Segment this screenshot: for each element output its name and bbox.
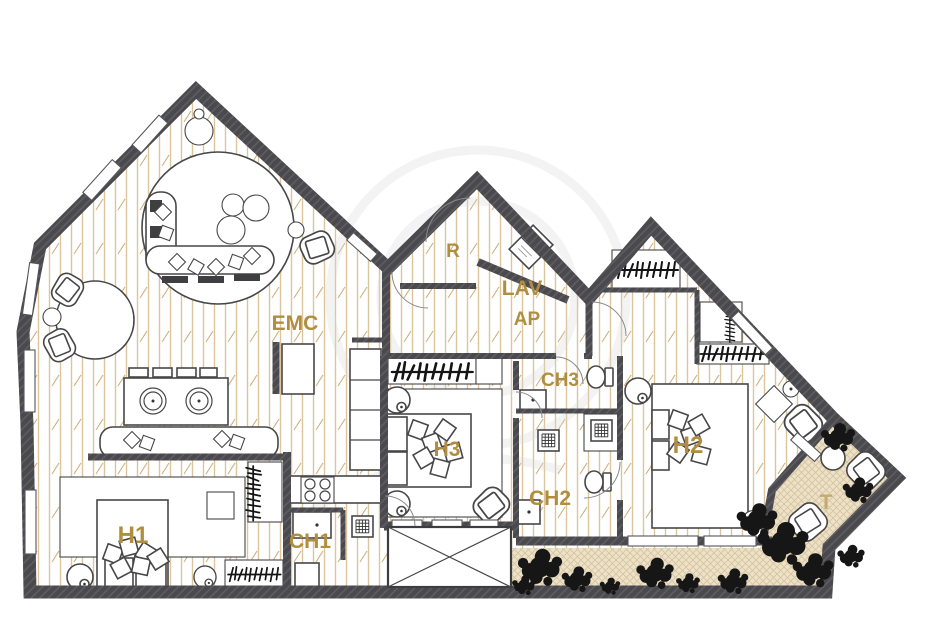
h1-lamp bbox=[194, 566, 216, 588]
h2-headboard bbox=[652, 410, 669, 439]
room-label-ap: AP bbox=[514, 309, 541, 330]
skylight-void bbox=[388, 527, 511, 587]
h2-side-table-dot bbox=[790, 388, 793, 391]
side-table bbox=[43, 308, 61, 326]
room-label-lav: LAV bbox=[502, 277, 542, 300]
room-label-emc: EMC bbox=[272, 312, 319, 335]
window bbox=[628, 536, 698, 546]
seat-base bbox=[234, 274, 260, 281]
seat-base bbox=[198, 276, 224, 283]
pot bbox=[217, 216, 245, 244]
ch1-faucet bbox=[315, 523, 318, 526]
seat-base bbox=[162, 276, 188, 283]
floor-plan-drawing: EMC R LAV AP CH3 H3 H2 CH2 CH1 H1 T bbox=[0, 0, 945, 632]
window bbox=[25, 490, 36, 554]
stove bbox=[301, 477, 334, 503]
room-label-ch3: CH3 bbox=[541, 370, 579, 391]
ch3-toilet bbox=[587, 366, 613, 388]
room-label-h2: H2 bbox=[673, 432, 704, 459]
window bbox=[704, 536, 756, 546]
room-label-ch2: CH2 bbox=[529, 487, 571, 510]
h3-wardrobe bbox=[388, 357, 476, 384]
ch2-drain bbox=[538, 430, 559, 451]
pot bbox=[243, 195, 269, 221]
h2-headboard bbox=[652, 441, 669, 470]
room-label-t: T bbox=[820, 491, 833, 514]
floor-plan: EMC R LAV AP CH3 H3 H2 CH2 CH1 H1 T bbox=[0, 0, 945, 632]
room-label-h1: H1 bbox=[118, 522, 149, 549]
h3-headboard bbox=[387, 417, 407, 451]
ch2-faucet bbox=[527, 510, 530, 513]
window bbox=[24, 350, 35, 412]
ch1-shower-drain bbox=[352, 516, 373, 537]
h2-lamp bbox=[625, 378, 651, 404]
room-label-ch1: CH1 bbox=[289, 530, 331, 553]
h3-shelf bbox=[476, 357, 502, 384]
ch2-shower-drain bbox=[591, 420, 612, 441]
room-label-r: R bbox=[446, 241, 460, 262]
side-table bbox=[288, 222, 304, 238]
pot bbox=[222, 194, 244, 216]
plant-pot-top bbox=[194, 109, 204, 119]
fridge bbox=[282, 344, 314, 394]
room-label-h3: H3 bbox=[434, 438, 461, 461]
h3-headboard bbox=[387, 452, 407, 485]
ch1-fixture bbox=[295, 563, 319, 587]
plant-pot bbox=[185, 117, 213, 145]
h1-tray-table bbox=[207, 492, 234, 519]
